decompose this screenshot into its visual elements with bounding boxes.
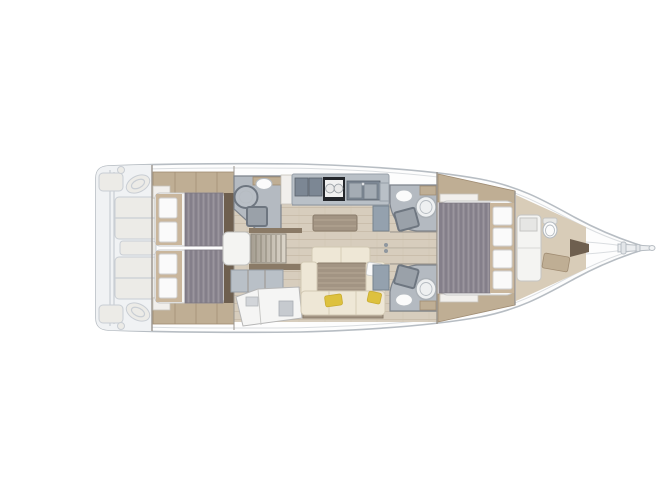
anchor-roller bbox=[636, 245, 640, 252]
head-port-toilet bbox=[416, 279, 436, 300]
mast-foot-bolt-2 bbox=[384, 249, 388, 253]
bow-tip-fitting bbox=[649, 246, 655, 251]
sink-basin-left bbox=[349, 183, 362, 198]
aft-cabin-port bbox=[153, 250, 234, 330]
aft-starboard-pillow-1 bbox=[159, 198, 177, 218]
yellow-pillow-1 bbox=[324, 294, 342, 307]
salon-cabinet-starboard bbox=[373, 206, 389, 231]
head-port-shelf bbox=[420, 301, 436, 310]
aft-port-pillow-2 bbox=[159, 278, 177, 298]
forward-duvet bbox=[439, 203, 490, 293]
anchor-cleat bbox=[621, 242, 626, 254]
head-starboard-toilet bbox=[416, 197, 436, 218]
forward-cabin bbox=[437, 172, 515, 324]
burner-right bbox=[334, 184, 343, 193]
floor-plan-canvas bbox=[0, 0, 667, 500]
faucet bbox=[361, 182, 364, 185]
yellow-pillow-2 bbox=[367, 291, 382, 304]
galley-sideboard bbox=[313, 215, 357, 231]
boat-floor-plan bbox=[0, 0, 667, 500]
chart-table-notepad bbox=[246, 297, 258, 306]
aft-starboard-duvet bbox=[185, 193, 223, 246]
head-starboard bbox=[390, 185, 437, 232]
stern-seat-port bbox=[99, 305, 123, 323]
salon-cabinet-port bbox=[373, 265, 389, 290]
companionway-trim-top bbox=[249, 228, 302, 233]
aft-head-wardrobe bbox=[281, 175, 292, 204]
cockpit bbox=[96, 165, 159, 331]
winch-starboard bbox=[118, 167, 125, 174]
head-port-sink bbox=[396, 294, 413, 306]
aft-port-duvet bbox=[185, 250, 223, 303]
aft-head-shower bbox=[235, 186, 258, 208]
head-starboard-sink bbox=[396, 190, 413, 202]
burner-left bbox=[326, 184, 335, 193]
sink-basin-right bbox=[364, 184, 377, 199]
winch-port bbox=[118, 323, 125, 330]
head-port-shower-pan bbox=[394, 265, 419, 289]
fridge-lid-2 bbox=[309, 178, 322, 196]
aft-head-shower-mat bbox=[247, 207, 267, 226]
head-port bbox=[390, 264, 437, 311]
aft-starboard-wardrobe bbox=[224, 193, 234, 233]
forward-pillow-4 bbox=[493, 271, 512, 289]
engine-box bbox=[223, 232, 250, 265]
forward-pillow-3 bbox=[493, 250, 512, 268]
aft-cabin-starboard bbox=[153, 166, 234, 246]
companionway-trim-bottom bbox=[249, 264, 302, 270]
stern-seat-starboard bbox=[99, 173, 123, 191]
forward-pillow-2 bbox=[493, 228, 512, 246]
fridge-lid-1 bbox=[295, 178, 308, 196]
salon-table bbox=[317, 263, 367, 291]
aft-port-pillow-1 bbox=[159, 254, 177, 274]
forward-pillow-1 bbox=[493, 207, 512, 225]
forepeak-hatch bbox=[520, 218, 537, 231]
mast-foot-bolt-1 bbox=[384, 243, 388, 247]
head-starboard-shower-pan bbox=[394, 207, 419, 231]
galley-end-counter bbox=[380, 183, 389, 201]
head-starboard-shelf bbox=[420, 186, 436, 195]
chart-table-pad bbox=[279, 301, 293, 316]
aft-starboard-pillow-2 bbox=[159, 222, 177, 242]
aft-head-sink bbox=[256, 179, 272, 190]
cockpit-table bbox=[120, 241, 156, 255]
